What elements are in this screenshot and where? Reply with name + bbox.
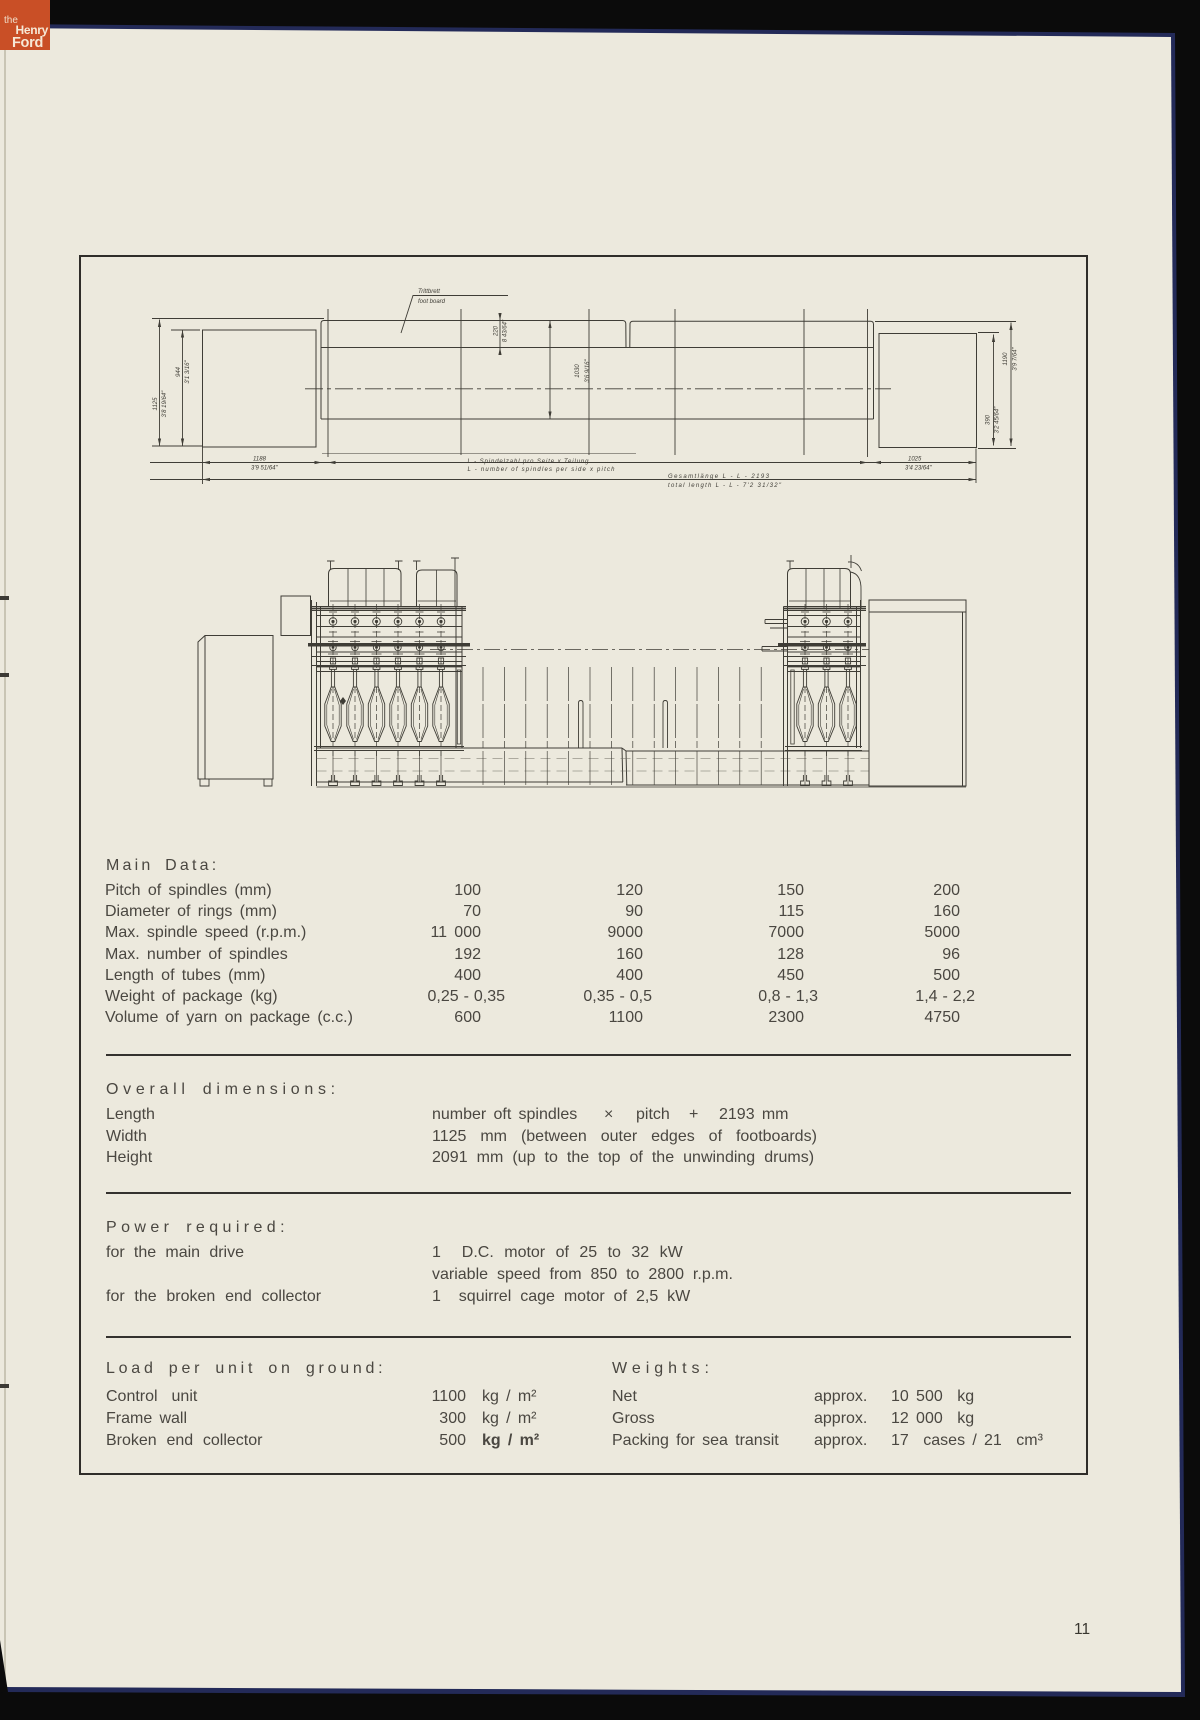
svg-text:foot board: foot board xyxy=(418,299,446,305)
svg-text:Trittbrett: Trittbrett xyxy=(418,289,440,295)
svg-text:944: 944 xyxy=(176,366,182,377)
svg-text:Gesamtlänge L - L - 2193: Gesamtlänge L - L - 2193 xyxy=(668,474,770,480)
svg-text:3'9 7/64": 3'9 7/64" xyxy=(1013,346,1019,370)
svg-text:390: 390 xyxy=(986,414,992,425)
svg-text:1125: 1125 xyxy=(153,397,159,411)
svg-text:3'6 9/16": 3'6 9/16" xyxy=(585,358,591,382)
svg-text:1190: 1190 xyxy=(1003,352,1009,366)
svg-text:L - Spindelzahl pro Seite x: L - Spindelzahl pro Seite x Teilung xyxy=(468,459,590,465)
svg-text:3'9 51/64": 3'9 51/64" xyxy=(251,466,279,472)
svg-text:1188: 1188 xyxy=(253,457,267,463)
svg-text:3'1 3/16": 3'1 3/16" xyxy=(185,359,191,383)
svg-text:8 43/64": 8 43/64" xyxy=(503,319,509,342)
svg-text:220: 220 xyxy=(494,325,500,337)
svg-text:1030: 1030 xyxy=(575,364,581,378)
svg-text:3'8 19/64": 3'8 19/64" xyxy=(162,390,168,418)
svg-text:1025: 1025 xyxy=(908,457,922,463)
svg-text:3'4 23/64": 3'4 23/64" xyxy=(905,466,933,472)
svg-text:total length L - L - 7'2 31/3: total length L - L - 7'2 31/32" xyxy=(668,483,782,489)
svg-text:L - number of spindles per: L - number of spindles per side x pitch xyxy=(468,467,616,473)
svg-text:3'2 45/64": 3'2 45/64" xyxy=(995,406,1001,434)
